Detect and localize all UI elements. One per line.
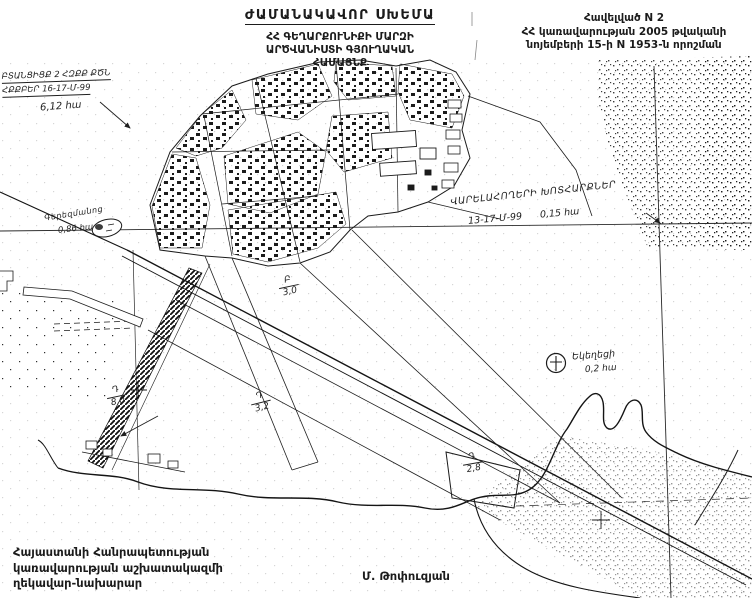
annex-line: նոյեմբերի 15-ի N 1953-ն որոշման [500,39,748,53]
signatory-block: Հայաստանի Հանրապետության կառավարության ա… [13,545,223,592]
subtitle-line: ԱՐԾՎԱՆԻՍՏԻ ԳՅՈՒՂԱԿԱՆ [230,44,450,57]
footer-line: Հայաստանի Հանրապետության [13,545,223,561]
annotation-line: ԲՏԱՆՑԻՑՔ 2 ՀԶՔՔ ՔԾՆ [2,68,111,84]
footer-line: կառավարության աշխատակազմի [13,561,223,577]
map-canvas [0,0,752,598]
signature-name: Մ. Թոփուզյան [336,569,476,583]
annotation-upper-left: ԲՏԱՆՑԻՑՔ 2 ՀԶՔՔ ՔԾՆ ՀՔՔԲԵՐ 16-17-Մ-99 [2,68,112,100]
scanned-map-page: { "document": { "title": "ԺԱՄԱՆԱԿԱՎՈՐ ՍԽ… [0,0,752,598]
annex-reference: Հավելված N 2 ՀՀ կառավարության 2005 թվակա… [500,12,748,53]
annex-line: ՀՀ կառավարության 2005 թվականի [500,26,748,40]
annex-line: Հավելված N 2 [500,12,748,26]
subtitle-line: ՀԱՄԱՅՆՔ [230,57,450,70]
map-subtitle: ՀՀ ԳԵՂԱՐՔՈՒՆԻՔԻ ՄԱՐԶԻ ԱՐԾՎԱՆԻՍՏԻ ԳՅՈՒՂԱԿ… [230,31,450,70]
annotation-line: ՀՔՔԲԵՐ 16-17-Մ-99 [2,83,91,98]
subtitle-line: ՀՀ ԳԵՂԱՐՔՈՒՆԻՔԻ ՄԱՐԶԻ [230,31,450,44]
footer-line: ղեկավար-նախարար [13,576,223,592]
parcel-label: Դ 2,8 [458,451,487,477]
header: ԺԱՄԱՆԱԿԱՎՈՐ ՍԽԵՄԱ [200,4,480,25]
page-title: ԺԱՄԱՆԱԿԱՎՈՐ ՍԽԵՄԱ [245,8,435,25]
